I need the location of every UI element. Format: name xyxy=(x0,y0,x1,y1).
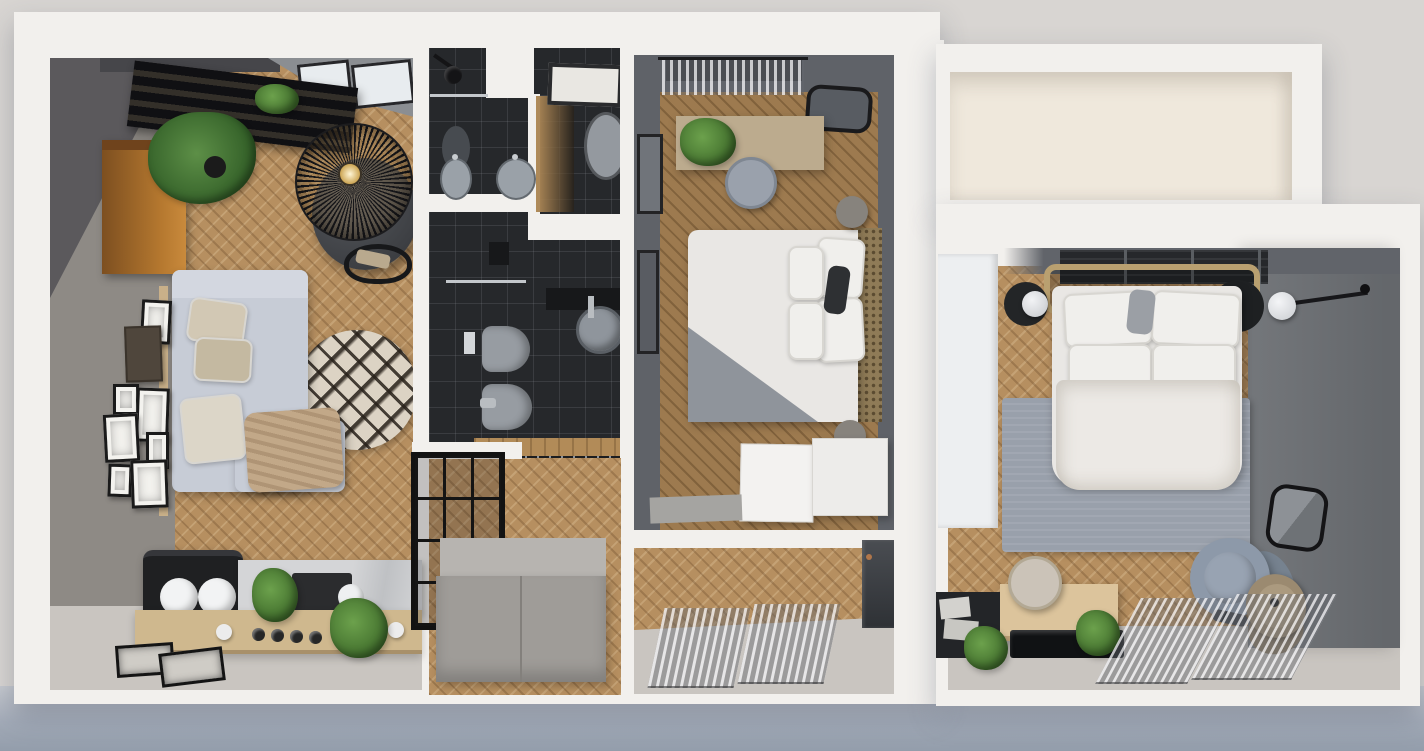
wardrobe-top xyxy=(440,538,606,578)
bidet-faucet xyxy=(480,398,496,408)
bed-duvet xyxy=(1056,380,1240,490)
floor-plant xyxy=(964,626,1008,670)
bed-pillow xyxy=(1151,290,1242,349)
wall-cabinet xyxy=(489,242,509,265)
sheer-curtain-panel xyxy=(647,608,750,688)
door-handle xyxy=(866,554,872,560)
shower-screen xyxy=(446,280,526,283)
gray-accent-pillow xyxy=(1126,289,1156,335)
basin-counter xyxy=(546,288,624,310)
curtain-rod xyxy=(658,57,808,60)
wall-frame xyxy=(637,250,659,354)
sheer-curtain-panel xyxy=(737,604,840,684)
wall-hung-toilet xyxy=(482,326,530,372)
round-stool xyxy=(725,157,777,209)
framed-mirror xyxy=(1264,482,1330,553)
apartment-render xyxy=(0,0,1424,751)
gray-doormat xyxy=(650,494,743,523)
sconce-arm-end xyxy=(1360,284,1370,294)
desk-plant xyxy=(680,118,736,166)
empty-room-floor xyxy=(950,72,1292,200)
basin-faucet xyxy=(588,296,594,318)
wall-frame xyxy=(637,134,663,214)
round-stool xyxy=(1008,556,1062,610)
globe-sconce xyxy=(1268,292,1296,320)
bed-pillow xyxy=(788,246,824,300)
flush-plate xyxy=(464,332,475,354)
white-wardrobe xyxy=(938,254,998,528)
wardrobe-seam xyxy=(520,576,522,682)
round-basin xyxy=(576,306,624,354)
entry-door xyxy=(862,540,894,628)
papers xyxy=(939,596,971,619)
white-dresser xyxy=(812,438,888,516)
globe-sconce xyxy=(1022,291,1048,317)
white-dresser xyxy=(739,443,814,522)
pouf xyxy=(836,196,868,228)
bed-pillow xyxy=(788,302,824,360)
window-curtain xyxy=(662,57,804,95)
